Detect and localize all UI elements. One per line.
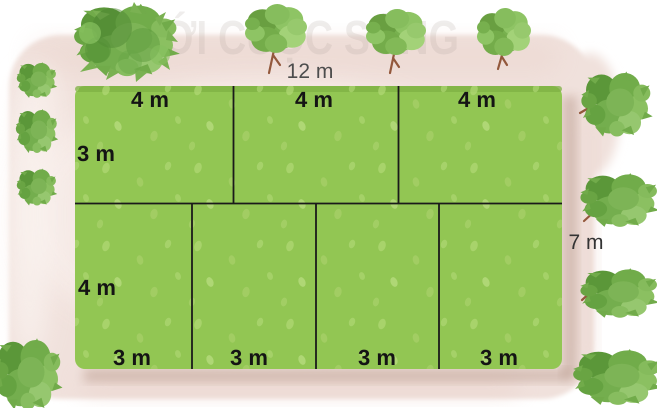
svg-text:7 m: 7 m <box>568 231 603 254</box>
svg-text:4 m: 4 m <box>295 87 333 112</box>
svg-text:3 m: 3 m <box>230 345 268 370</box>
svg-text:3 m: 3 m <box>480 345 518 370</box>
svg-text:4 m: 4 m <box>458 87 496 112</box>
svg-text:3 m: 3 m <box>358 345 396 370</box>
svg-text:4 m: 4 m <box>78 275 116 300</box>
svg-text:12 m: 12 m <box>287 60 334 83</box>
svg-text:4 m: 4 m <box>131 87 169 112</box>
svg-text:3 m: 3 m <box>113 345 151 370</box>
svg-text:3 m: 3 m <box>77 141 115 166</box>
